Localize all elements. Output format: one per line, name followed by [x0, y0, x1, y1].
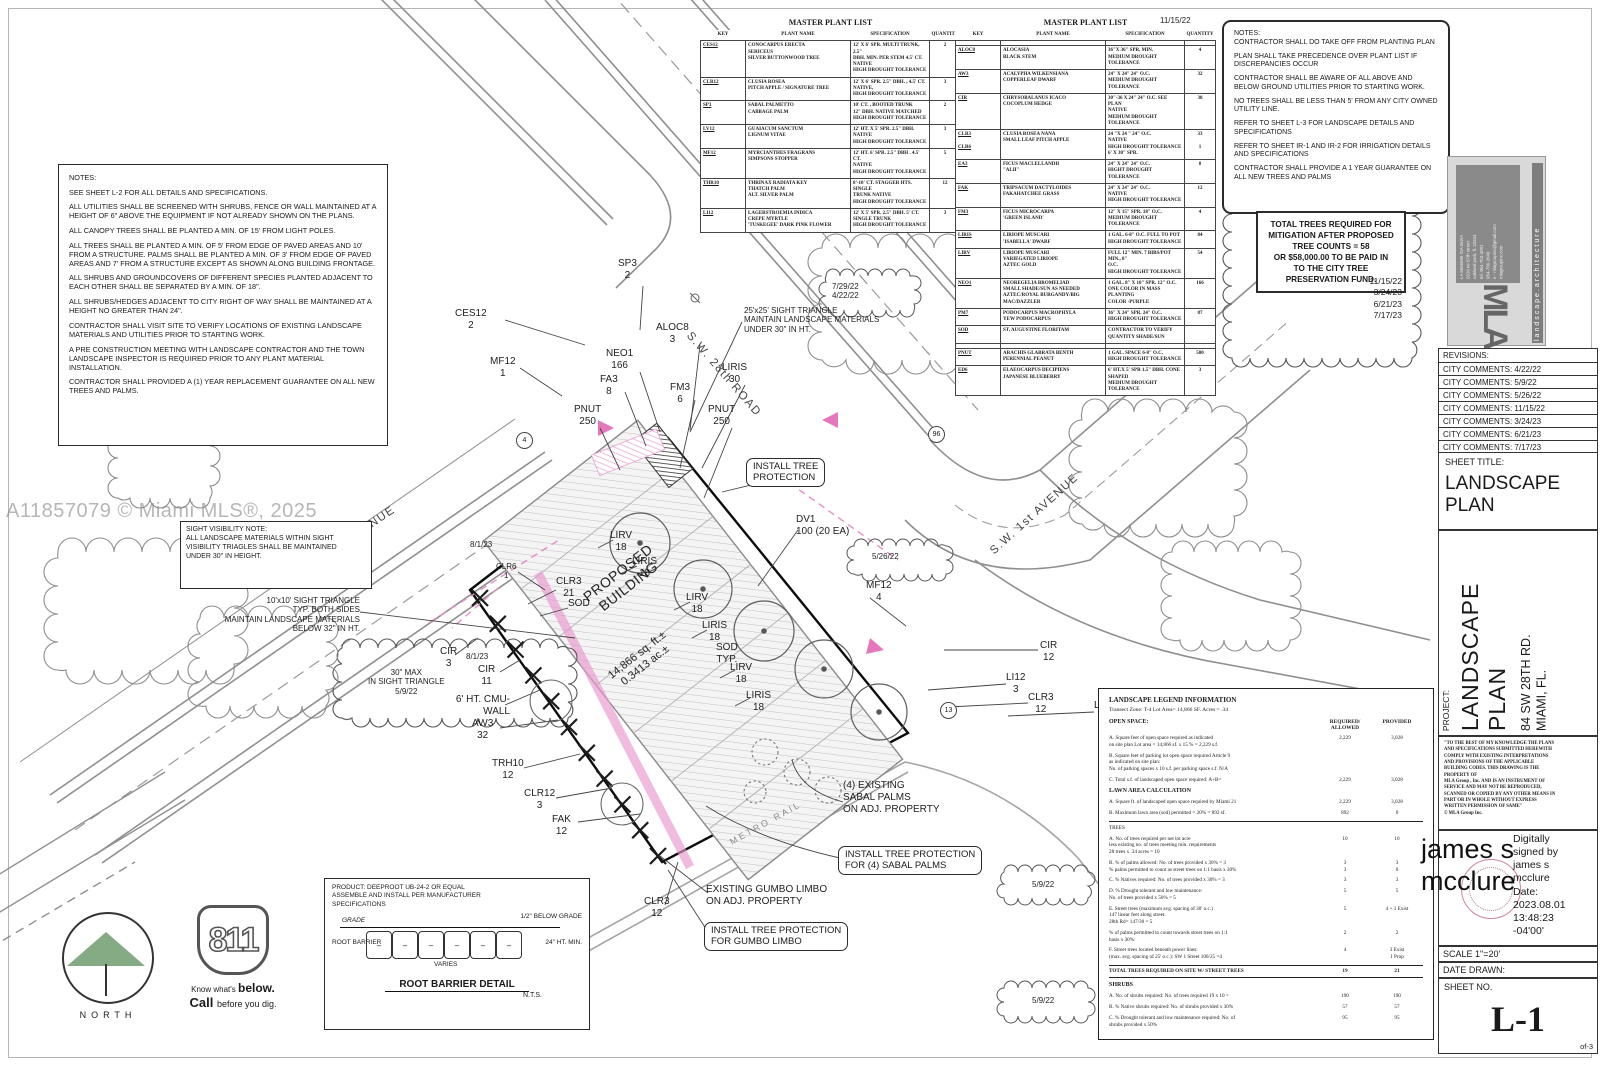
- label-li12: LI12 3: [1006, 672, 1025, 696]
- plant-cell: CONTRACTOR TO VERIFY QUANTITY SHADE/SUN: [1106, 326, 1185, 344]
- legend-row: A. No. of shrubs required: No. of trees …: [1109, 993, 1423, 1000]
- plant-cell: 12' X 6' SPR. MULTI TRUNK, 2.5" DBH. MIN…: [851, 41, 930, 77]
- plant-list-2-title: MASTER PLANT LIST: [955, 18, 1216, 27]
- keynote-13: 13: [940, 702, 957, 719]
- plant-cell: [1185, 326, 1216, 344]
- below-grade-label: 1/2" BELOW GRADE: [520, 913, 582, 920]
- plant-cell: LV12: [701, 125, 746, 149]
- legend-cell: A. Square feet of open space required as…: [1109, 735, 1319, 749]
- sheet-title-label: SHEET TITLE:: [1445, 457, 1591, 467]
- legend-cell: A. No. of trees required per net lot acr…: [1109, 836, 1319, 856]
- legend-cell: 2,229: [1319, 777, 1371, 784]
- column-header: PLANT NAME: [746, 30, 851, 41]
- legend-cell: 190: [1371, 993, 1423, 1000]
- legend-cell: 2,229: [1319, 799, 1371, 806]
- legend-cell: D. % Drought tolerant and low maintenanc…: [1109, 888, 1319, 902]
- legend-cell: [1371, 982, 1423, 990]
- legend-cell: 10: [1319, 836, 1371, 856]
- legend-row: B. Maximum lawn area (sod) permitted = 2…: [1109, 810, 1423, 817]
- plant-cell: NEO1: [956, 278, 1001, 308]
- legend-cell: 10: [1371, 836, 1423, 856]
- label-cmu-wall: 6' HT. CMU- WALL: [430, 694, 510, 718]
- plant-row: EA3FICUS MACLELLANDII "ALII"24" X 24" 24…: [956, 160, 1216, 184]
- revision-entry: CITY COMMENTS: 3/24/23: [1439, 415, 1597, 428]
- legend-row: SHRUBS: [1109, 982, 1423, 990]
- north-arrow-circle: [62, 912, 154, 1004]
- plant-cell: 12: [1185, 183, 1216, 207]
- keynote-4: 4: [516, 432, 533, 449]
- legend-col-required: REQUIRED/ ALLOWED: [1319, 719, 1371, 731]
- sheet-title: LANDSCAPE PLAN: [1445, 473, 1591, 517]
- plant-cell: 24" X 24" 24" O.C. NATIVE HIGH DROUGHT T…: [1106, 183, 1185, 207]
- revisions-title: REVISIONS:: [1439, 349, 1597, 363]
- plant-cell: PNUT: [956, 348, 1001, 366]
- general-note: CONTRACTOR SHALL VISIT SITE TO VERIFY LO…: [69, 321, 377, 339]
- plant-cell: FM3: [956, 207, 1001, 231]
- plant-cell: PODOCARPUS MACROPHYLA YEW PODOCARPUS: [1001, 308, 1106, 326]
- label-fm3: FM3 6: [670, 382, 690, 406]
- legend-cell: A. No. of shrubs required: No. of trees …: [1109, 993, 1319, 1000]
- signature-block: james s mcclure Digitally signed by jame…: [1438, 830, 1598, 946]
- plant-cell: FAK: [956, 183, 1001, 207]
- legend-cell: 4: [1319, 947, 1371, 961]
- plant-cell: CONOCARPUS ERECTA SERICEUS SILVER BUTTON…: [746, 41, 851, 77]
- plant-cell: 8: [1185, 160, 1216, 184]
- legend-cell: 95: [1371, 1015, 1423, 1029]
- plant-row: NEO1NEOREGELIA BROMELIAD SMALL SHADE/SUN…: [956, 278, 1216, 308]
- column-header: KEY: [701, 30, 746, 41]
- plant-cell: LIRV: [956, 248, 1001, 278]
- plant-row: PNUTARACHIS GLABRATA BENTH PERENNIAL PEA…: [956, 348, 1216, 366]
- plant-cell: SP3: [701, 101, 746, 125]
- legend-subtitle: Transect Zone: T-4 Lot Area= 14,866 SF. …: [1109, 707, 1423, 713]
- plant-cell: FULL 12" MIN. 7 BIBS/POT MIN., 8" O.C. H…: [1106, 248, 1185, 278]
- label-date-5-26-22: 5/26/22: [872, 552, 899, 561]
- legend-cell: C. Total s.f. of landscaped open space r…: [1109, 777, 1319, 784]
- legend-row: C. Total s.f. of landscaped open space r…: [1109, 777, 1423, 784]
- plant-cell: PM7: [956, 308, 1001, 326]
- label-clr6: CLR6 1: [496, 562, 516, 581]
- plant-cell: 84: [1185, 231, 1216, 249]
- before-dig-text: before you dig.: [217, 999, 277, 1009]
- contractor-note: REFER TO SHEET L-3 FOR LANDSCAPE DETAILS…: [1234, 120, 1438, 138]
- label-aw3: AW3 32: [472, 718, 493, 742]
- legend-cell: 3: [1319, 877, 1371, 884]
- plant-cell: THR10: [701, 178, 746, 208]
- label-mf12-1: MF12 1: [490, 356, 516, 380]
- plant-cell: 24" X 24" 24" O.C. HIGHT DROUGHT TOLERAN…: [1106, 160, 1185, 184]
- nts-label: N.T.S.: [332, 992, 582, 999]
- label-pnut-left: PNUT 250: [574, 404, 601, 428]
- legend-cell: TOTAL TREES REQUIRED ON SITE W/ STREET T…: [1109, 968, 1319, 975]
- label-sight-triangle-25: 25'x25' SIGHT TRIANGLE MAINTAIN LANDSCAP…: [744, 306, 879, 334]
- legend-cell: 5: [1319, 906, 1371, 926]
- legend-row: B. Square feet of parking lot open space…: [1109, 753, 1423, 773]
- legend-cell: 0: [1371, 810, 1423, 817]
- legend-cell: [1371, 788, 1423, 796]
- project-address: 84 SW 28TH RD. MIAMI, FL.: [1519, 535, 1550, 731]
- plant-cell: 3: [1185, 366, 1216, 396]
- legend-row: % of palms permitted to count towards st…: [1109, 930, 1423, 944]
- legend-row: E. Street trees (maximum avg. spacing of…: [1109, 906, 1423, 926]
- label-liris-b: LIRIS 18: [702, 620, 727, 644]
- root-barrier-cell: –: [496, 931, 522, 959]
- plant-cell: CLR12: [701, 77, 746, 101]
- plant-row: FAKTRIPSACUM DACTYLOIDES FAKAHATCHEE GRA…: [956, 183, 1216, 207]
- plant-row: AW3ACALYPHA WILKENSIANA COPPERLEAF DWARF…: [956, 70, 1216, 94]
- legend-cell: 3 0: [1371, 860, 1423, 874]
- plant-row: FM3FICUS MICROCARPA 'GREEN ISLAND'12" X …: [956, 207, 1216, 231]
- legend-cell: F. Street trees located beneath power li…: [1109, 947, 1319, 961]
- label-pnut-right: PNUT 250: [708, 404, 735, 428]
- landscape-legend-box: LANDSCAPE LEGEND INFORMATION Transect Zo…: [1098, 688, 1434, 1040]
- contractor-note: NO TREES SHALL BE LESS THAN 5' FROM ANY …: [1234, 98, 1438, 116]
- plant-cell: EA3: [956, 160, 1001, 184]
- height-label: 24" HT. MIN.: [545, 939, 582, 946]
- label-sp3: SP3 2: [618, 258, 637, 282]
- label-fak: FAK 12: [552, 814, 571, 838]
- label-liris-30: LIRIS 30: [722, 362, 747, 386]
- plant-row: LIRVLIRIOPE MUSCARI VARIEGATED LIRIOPE A…: [956, 248, 1216, 278]
- label-aloc8: ALOC8 3: [656, 322, 689, 346]
- legend-cell: 3,028: [1371, 799, 1423, 806]
- root-barrier-title: ROOT BARRIER DETAIL: [385, 979, 528, 992]
- label-mf12-4: MF12 4: [866, 580, 892, 604]
- column-header: SPECIFICATION: [1106, 30, 1185, 41]
- plant-cell: LIRIS: [956, 231, 1001, 249]
- legend-cell: 57: [1371, 1004, 1423, 1011]
- keynote-96: 96: [928, 426, 945, 443]
- root-barrier-cell: –: [366, 931, 392, 959]
- plant-cell: ARACHIS GLABRATA BENTH PERENNIAL PEANUT: [1001, 348, 1106, 366]
- grade-line: [340, 927, 560, 928]
- label-trh10: TRH10 12: [492, 758, 524, 782]
- project-name: LANDSCAPE PLAN: [1457, 535, 1511, 731]
- legend-row: F. Street trees located beneath power li…: [1109, 947, 1423, 961]
- label-liris-c: LIRIS 18: [746, 690, 771, 714]
- sheet-title-block: SHEET TITLE: LANDSCAPE PLAN: [1438, 452, 1598, 530]
- contractor-note: PLAN SHALL TAKE PRECEDENCE OVER PLANT LI…: [1234, 53, 1438, 71]
- plant-cell: 54: [1185, 248, 1216, 278]
- general-note: SEE SHEET L-2 FOR ALL DETAILS AND SPECIF…: [69, 188, 377, 197]
- legend-row: TREES: [1109, 821, 1423, 832]
- label-clr3-bottom: CLR3 12: [644, 896, 670, 920]
- sheet-no-label: SHEET NO.: [1444, 982, 1592, 992]
- label-existing-sabal: (4) EXISTING SABAL PALMS ON ADJ. PROPERT…: [843, 780, 940, 815]
- architect-address: LA 6666696 ISA 062/A 2016 ne 67th street…: [1456, 165, 1520, 283]
- plant-row: CLR3 CLR6CLUSIA ROSEA NANA SMALL LEAF PI…: [956, 130, 1216, 160]
- revision-cloud: [1161, 541, 1301, 651]
- plant-cell: 24" X 24" 24" O.C. MEDIUM DROUGHT TOLERA…: [1106, 70, 1185, 94]
- plant-cell: 24 "X 24 " 24" O.C. NATIVE HIGH DROUGHT …: [1106, 130, 1185, 160]
- plant-cell: NEOREGELIA BROMELIAD SMALL SHADE/SUN AS …: [1001, 278, 1106, 308]
- plant-cell: 6' HT.X 5' SPR 1.5" DBH. CONE SHAPED MED…: [1106, 366, 1185, 396]
- legend-row: A. Square feet of open space required as…: [1109, 735, 1423, 749]
- plant-cell: 12' HT. X 5' SPR. 2.5" DBH. NATIVE HIGH …: [851, 125, 930, 149]
- label-ces12: CES12 2: [455, 308, 487, 332]
- plant-cell: 30"-36 X 24" 24" O.C. SEE PLAN NATIVE ME…: [1106, 93, 1185, 129]
- north-arrow-triangle: [67, 932, 145, 966]
- plant-cell: LAGERSTROEMIA INDICA CREPE MYRTLE 'TUSKE…: [746, 208, 851, 232]
- legend-cell: 2: [1319, 930, 1371, 944]
- plant-cell: CIR: [956, 93, 1001, 129]
- general-note: ALL SHRUBS AND GROUNDCOVERS OF DIFFERENT…: [69, 273, 377, 291]
- general-note: ALL UTILITIES SHALL BE SCREENED WITH SHR…: [69, 202, 377, 220]
- column-header: SPECIFICATION: [851, 30, 930, 41]
- general-note: ALL CANOPY TREES SHALL BE PLANTED A MIN.…: [69, 226, 377, 235]
- know-whats-text: Know what's: [191, 985, 238, 994]
- plant-cell: 4: [1185, 207, 1216, 231]
- sight-note-body: ALL LANDSCAPE MATERIALS WITHIN SIGHT VIS…: [186, 534, 366, 561]
- plant-row: SODST. AUGUSTINE FLORITAMCONTRACTOR TO V…: [956, 326, 1216, 344]
- project-label: PROJECT:: [1441, 690, 1451, 731]
- label-clr12: CLR12 3: [524, 788, 555, 812]
- revision-entry: CITY COMMENTS: 6/21/23: [1439, 428, 1597, 441]
- north-arrow-stem: [105, 964, 107, 996]
- legend-cell: B. % of palms allowed: No. of trees prov…: [1109, 860, 1319, 874]
- legend-cell: 3: [1371, 877, 1423, 884]
- contractor-note: CONTRACTOR SHALL PROVIDE A 1 YEAR GUARAN…: [1234, 165, 1438, 183]
- plant-cell: FICUS MACLELLANDII "ALII": [1001, 160, 1106, 184]
- mls-watermark: A11857079 © Miami MLS®, 2025: [6, 500, 317, 523]
- column-header: KEY: [956, 30, 1001, 41]
- legend-row: A. Square ft. of landscaped open space r…: [1109, 799, 1423, 806]
- plant-cell: ACALYPHA WILKENSIANA COPPERLEAF DWARF: [1001, 70, 1106, 94]
- plant-row: PM7PODOCARPUS MACROPHYLA YEW PODOCARPUS3…: [956, 308, 1216, 326]
- label-cir-11: CIR 11: [478, 664, 495, 688]
- legend-cell: A. Square ft. of landscaped open space r…: [1109, 799, 1319, 806]
- master-plant-list-1: MASTER PLANT LIST KEYPLANT NAMESPECIFICA…: [700, 18, 961, 233]
- plant-row: LV12GUAIACUM SANCTUM LIGNUM VITAE12' HT.…: [701, 125, 961, 149]
- notes-title: NOTES:: [69, 173, 377, 182]
- legend-cell: 3 3: [1319, 860, 1371, 874]
- varies-label: VARIES: [434, 961, 457, 968]
- sight-note-title: SIGHT VISIBILITY NOTE:: [186, 525, 366, 534]
- landscape-plan-sheet: A11857079 © Miami MLS®, 2025 NOTES: SEE …: [0, 0, 1600, 1066]
- north-label: NORTH: [62, 1010, 154, 1020]
- legend-row: B. % Native shrubs required: No. of shru…: [1109, 1004, 1423, 1011]
- plant-cell: CLUSIA ROSEA NANA SMALL LEAF PITCH APPLE: [1001, 130, 1106, 160]
- legend-cell: 21: [1371, 968, 1423, 975]
- sheet-of: of-3: [1580, 1042, 1593, 1051]
- plant-cell: 12' HT. 6' SPR. 2.5" DBH . 4.5' CT. NATI…: [851, 148, 930, 178]
- legend-row: A. No. of trees required per net lot acr…: [1109, 836, 1423, 856]
- revision-entry: CITY COMMENTS: 4/22/22: [1439, 363, 1597, 376]
- plant-row: ALOC8ALOCASIA BLACK STEM36"X 36" SPR. MI…: [956, 46, 1216, 70]
- plant-cell: SOD: [956, 326, 1001, 344]
- legend-cell: [1371, 753, 1423, 773]
- plant-cell: 1 GAL. 6-8" O.C. FULL TO POT HIGH DROUGH…: [1106, 231, 1185, 249]
- root-barrier-cell: –: [392, 931, 418, 959]
- call-text: Call: [189, 995, 216, 1010]
- architect-firm-name: landscape.architecture: [1532, 163, 1543, 343]
- root-barrier-cell: –: [444, 931, 470, 959]
- label-lirv-c: LIRV 18: [730, 662, 752, 686]
- plant-cell: LI12: [701, 208, 746, 232]
- root-barrier-cell: –: [418, 931, 444, 959]
- sheet-number-block: SHEET NO. L-1 of-3: [1438, 978, 1598, 1054]
- plant-cell: 166: [1185, 278, 1216, 308]
- general-note: ALL SHRUBS/HEDGES ADJACENT TO CITY RIGHT…: [69, 297, 377, 315]
- contractor-note: REFER TO SHEET IR-1 AND IR-2 FOR IRRIGAT…: [1234, 143, 1438, 161]
- legend-cell: 19: [1319, 968, 1371, 975]
- plant-cell: 32: [1185, 70, 1216, 94]
- legend-row: B. % of palms allowed: No. of trees prov…: [1109, 860, 1423, 874]
- label-date-8-1-23-a: 8/1/23: [470, 540, 492, 549]
- plant-list-1-title: MASTER PLANT LIST: [700, 18, 961, 27]
- legend-cell: 4 + 1 Exist: [1371, 906, 1423, 926]
- general-notes-box: NOTES: SEE SHEET L-2 FOR ALL DETAILS AND…: [58, 164, 388, 446]
- column-header: QUANTITY: [1185, 30, 1216, 41]
- call-811-shield-icon: 811: [197, 905, 269, 975]
- plant-cell: 500: [1185, 348, 1216, 366]
- general-note: A PRE CONSTRUCTION MEETING WITH LANDSCAP…: [69, 345, 377, 372]
- legend-cell: 5: [1371, 888, 1423, 902]
- call-811-logo: 811 Know what's below. Call before you d…: [178, 905, 288, 1010]
- legend-cell: 2,229: [1319, 735, 1371, 749]
- plant-cell: ELAEOCARPUS DECIPIENS JAPANESE BLUEBERRY: [1001, 366, 1106, 396]
- legend-cell: 5: [1319, 888, 1371, 902]
- legend-cell: LAWN AREA CALCULATION: [1109, 788, 1319, 796]
- plant-cell: 10' CT. , BOOTED TRUNK 12" DBH. NATIVE M…: [851, 101, 930, 125]
- revision-dates-cloud: 11/15/22 3/24/23 6/21/23 7/17/23: [1330, 276, 1402, 322]
- legend-cell: TREES: [1109, 825, 1319, 832]
- plant-row: MF12MYRCIANTHES FRAGRANS SIMPSONS STOPPE…: [701, 148, 961, 178]
- revision-cloud: [1069, 399, 1247, 537]
- master-plant-list-2: MASTER PLANT LIST KEYPLANT NAMESPECIFICA…: [955, 18, 1216, 396]
- legend-cell: 95: [1319, 1015, 1371, 1029]
- plant-cell: 33 1: [1185, 130, 1216, 160]
- plant-cell: 12' X 5' SPR. 2.5" DBH. 5' CT. SINGLE TR…: [851, 208, 930, 232]
- plant-cell: ALOC8: [956, 46, 1001, 70]
- label-fa3: FA3 8: [600, 374, 618, 398]
- plant-row: LI12LAGERSTROEMIA INDICA CREPE MYRTLE 'T…: [701, 208, 961, 232]
- plant-cell: 12' X 6' SPR. 2.5" DBH. , 4.5' CT. NATIV…: [851, 77, 930, 101]
- legend-cell: 190: [1319, 993, 1371, 1000]
- root-barrier-detail-box: PRODUCT: DEEPROOT UB-24-2 OR EQUAL ASSEM…: [324, 878, 590, 1030]
- below-text: below.: [238, 981, 275, 995]
- plant-cell: TRIPSACUM DACTYLOIDES FAKAHATCHEE GRASS: [1001, 183, 1106, 207]
- plant-cell: LIRIOPE MUSCARI VARIEGATED LIRIOPE AZTEC…: [1001, 248, 1106, 278]
- plant-row: ED6ELAEOCARPUS DECIPIENS JAPANESE BLUEBE…: [956, 366, 1216, 396]
- contractor-notes-title: NOTES:: [1234, 30, 1438, 39]
- revisions-block: REVISIONS: CITY COMMENTS: 4/22/22CITY CO…: [1438, 348, 1598, 467]
- revision-entry: CITY COMMENTS: 5/9/22: [1439, 376, 1597, 389]
- plant-row: SP3SABAL PALMETTO CABBAGE PALM10' CT. , …: [701, 101, 961, 125]
- legend-cell: 3,028: [1371, 735, 1423, 749]
- label-clr3-right: CLR3 12: [1028, 692, 1054, 716]
- label-date-5-9-22-b: 5/9/22: [1032, 996, 1054, 1005]
- label-cir-12: CIR 12: [1040, 640, 1057, 664]
- legend-cell: 892: [1319, 810, 1371, 817]
- label-cloud-30-max: 30" MAX IN SIGHT TRIANGLE 5/9/22: [368, 668, 445, 696]
- plant-row: LIRISLIRIOPE MUSCARI 'ISABELLA' DWARF1 G…: [956, 231, 1216, 249]
- root-barrier-cell: –: [470, 931, 496, 959]
- plant-cell: 4: [1185, 46, 1216, 70]
- plant-row: THR10THRINAX RADIATA KEY THATCH PALM ALT…: [701, 178, 961, 208]
- plant-cell: 36"X 36" SPR. MIN. MEDIUM DROUGHT TOLERA…: [1106, 46, 1185, 70]
- legend-cell: % of palms permitted to count towards st…: [1109, 930, 1319, 944]
- plant-cell: SABAL PALMETTO CABBAGE PALM: [746, 101, 851, 125]
- legend-cell: [1319, 788, 1371, 796]
- sheet-number: L-1: [1444, 998, 1592, 1040]
- label-sight-triangle-10: 10'x10' SIGHT TRIANGLE TYP. BOTH SIDES M…: [205, 596, 360, 634]
- north-arrow: NORTH: [62, 912, 154, 1020]
- legend-row: TOTAL TREES REQUIRED ON SITE W/ STREET T…: [1109, 965, 1423, 978]
- label-lirv-a: LIRV 18: [610, 530, 632, 554]
- sight-visibility-note-box: SIGHT VISIBILITY NOTE: ALL LANDSCAPE MAT…: [180, 521, 372, 589]
- label-clr3-21: CLR3 21: [556, 576, 582, 600]
- legend-column-headers: OPEN SPACE: REQUIRED/ ALLOWED PROVIDED: [1109, 719, 1423, 731]
- revision-entry: CITY COMMENTS: 11/15/22: [1439, 402, 1597, 415]
- legend-cell: C. % Drought tolerant and low maintenanc…: [1109, 1015, 1319, 1029]
- legend-cell: SHRUBS: [1109, 982, 1319, 990]
- legend-cell: 2: [1371, 930, 1423, 944]
- contractor-note: CONTRACTOR SHALL BE AWARE OF ALL ABOVE A…: [1234, 75, 1438, 93]
- legend-cell: [1319, 982, 1371, 990]
- road-sw-1st-left: [20, 419, 597, 863]
- label-cir-3: CIR 3: [440, 646, 457, 670]
- legend-title: LANDSCAPE LEGEND INFORMATION: [1109, 696, 1423, 704]
- legend-cell: 57: [1319, 1004, 1371, 1011]
- signature-details: Digitally signed by james s mcclure Date…: [1513, 833, 1595, 938]
- legend-open-space: OPEN SPACE:: [1109, 719, 1319, 731]
- legend-cell: [1319, 753, 1371, 773]
- plant-cell: MF12: [701, 148, 746, 178]
- plant-cell: 1 GAL. SPACE 6-8" O.C. HIGH DROUGHT TOLE…: [1106, 348, 1185, 366]
- plant-row: CES12CONOCARPUS ERECTA SERICEUS SILVER B…: [701, 41, 961, 77]
- legend-col-provided: PROVIDED: [1371, 719, 1423, 731]
- plant-cell: 8'-10' CT. STAGGER HTS. SINGLE TRUNK NAT…: [851, 178, 930, 208]
- plant-row: CLR12CLUSIA ROSEA PITCH APPLE / SIGNATUR…: [701, 77, 961, 101]
- callout-install-tree-protection: INSTALL TREE PROTECTION: [746, 458, 825, 487]
- legend-cell: E. Street trees (maximum avg. spacing of…: [1109, 906, 1319, 926]
- plant-cell: CHRYSOBALANUS ICACO COCOPLUM HEDGE: [1001, 93, 1106, 129]
- label-date-5-9-22-a: 5/9/22: [1032, 880, 1054, 889]
- contractor-note: CONTRACTOR SHALL DO TAKE OFF FROM PLANTI…: [1234, 39, 1438, 48]
- plant-cell: LIRIOPE MUSCARI 'ISABELLA' DWARF: [1001, 231, 1106, 249]
- legend-row: C. % Natives required: No. of trees prov…: [1109, 877, 1423, 884]
- plant-cell: ST. AUGUSTINE FLORITAM: [1001, 326, 1106, 344]
- legend-cell: B. Square feet of parking lot open space…: [1109, 753, 1319, 773]
- legend-cell: [1371, 825, 1423, 832]
- call-811-number: 811: [209, 921, 258, 960]
- plant-cell: CES12: [701, 41, 746, 77]
- root-barrier-diagram: GRADE 1/2" BELOW GRADE ROOT BARRIER 24" …: [332, 913, 582, 973]
- plant-row: CIRCHRYSOBALANUS ICACO COCOPLUM HEDGE30"…: [956, 93, 1216, 129]
- mla-logo: MLA: [1475, 283, 1514, 348]
- legend-cell: B. % Native shrubs required: No. of shru…: [1109, 1004, 1319, 1011]
- label-dv1: DV1 100 (20 EA): [796, 514, 849, 538]
- plant-cell: 87: [1185, 308, 1216, 326]
- disclaimer-block: "TO THE BEST OF MY KNOWLEDGE THE PLANS A…: [1438, 736, 1598, 830]
- project-block: PROJECT: LANDSCAPE PLAN 84 SW 28TH RD. M…: [1438, 530, 1598, 736]
- plant-cell: ED6: [956, 366, 1001, 396]
- architect-logo-card: LA 6666696 ISA 062/A 2016 ne 67th street…: [1447, 156, 1546, 346]
- label-dates-top: 7/29/22 4/22/22: [832, 282, 859, 301]
- plant-cell: THRINAX RADIATA KEY THATCH PALM ALT. SIL…: [746, 178, 851, 208]
- column-header: PLANT NAME: [1001, 30, 1106, 41]
- general-note: ALL TREES SHALL BE PLANTED A MIN. OF 5' …: [69, 241, 377, 268]
- grade-label: GRADE: [342, 917, 365, 924]
- legend-row: D. % Drought tolerant and low maintenanc…: [1109, 888, 1423, 902]
- legend-cell: [1319, 825, 1371, 832]
- label-neo1: NEO1 166: [606, 348, 633, 372]
- plant-cell: ALOCASIA BLACK STEM: [1001, 46, 1106, 70]
- label-lirv-b: LIRV 18: [686, 592, 708, 616]
- plant-cell: FICUS MICROCARPA 'GREEN ISLAND': [1001, 207, 1106, 231]
- plant-cell: CLR3 CLR6: [956, 130, 1001, 160]
